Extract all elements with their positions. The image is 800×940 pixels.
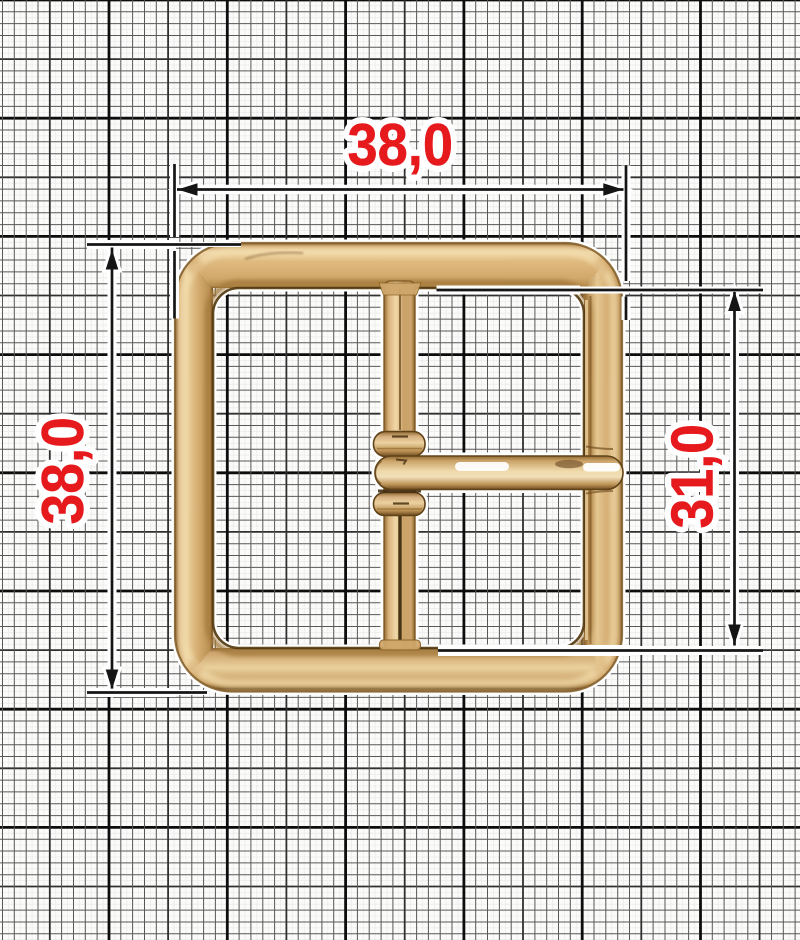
svg-text:38,0: 38,0 [30,417,96,525]
svg-text:38,0: 38,0 [348,112,454,178]
svg-text:31,0: 31,0 [660,424,726,529]
